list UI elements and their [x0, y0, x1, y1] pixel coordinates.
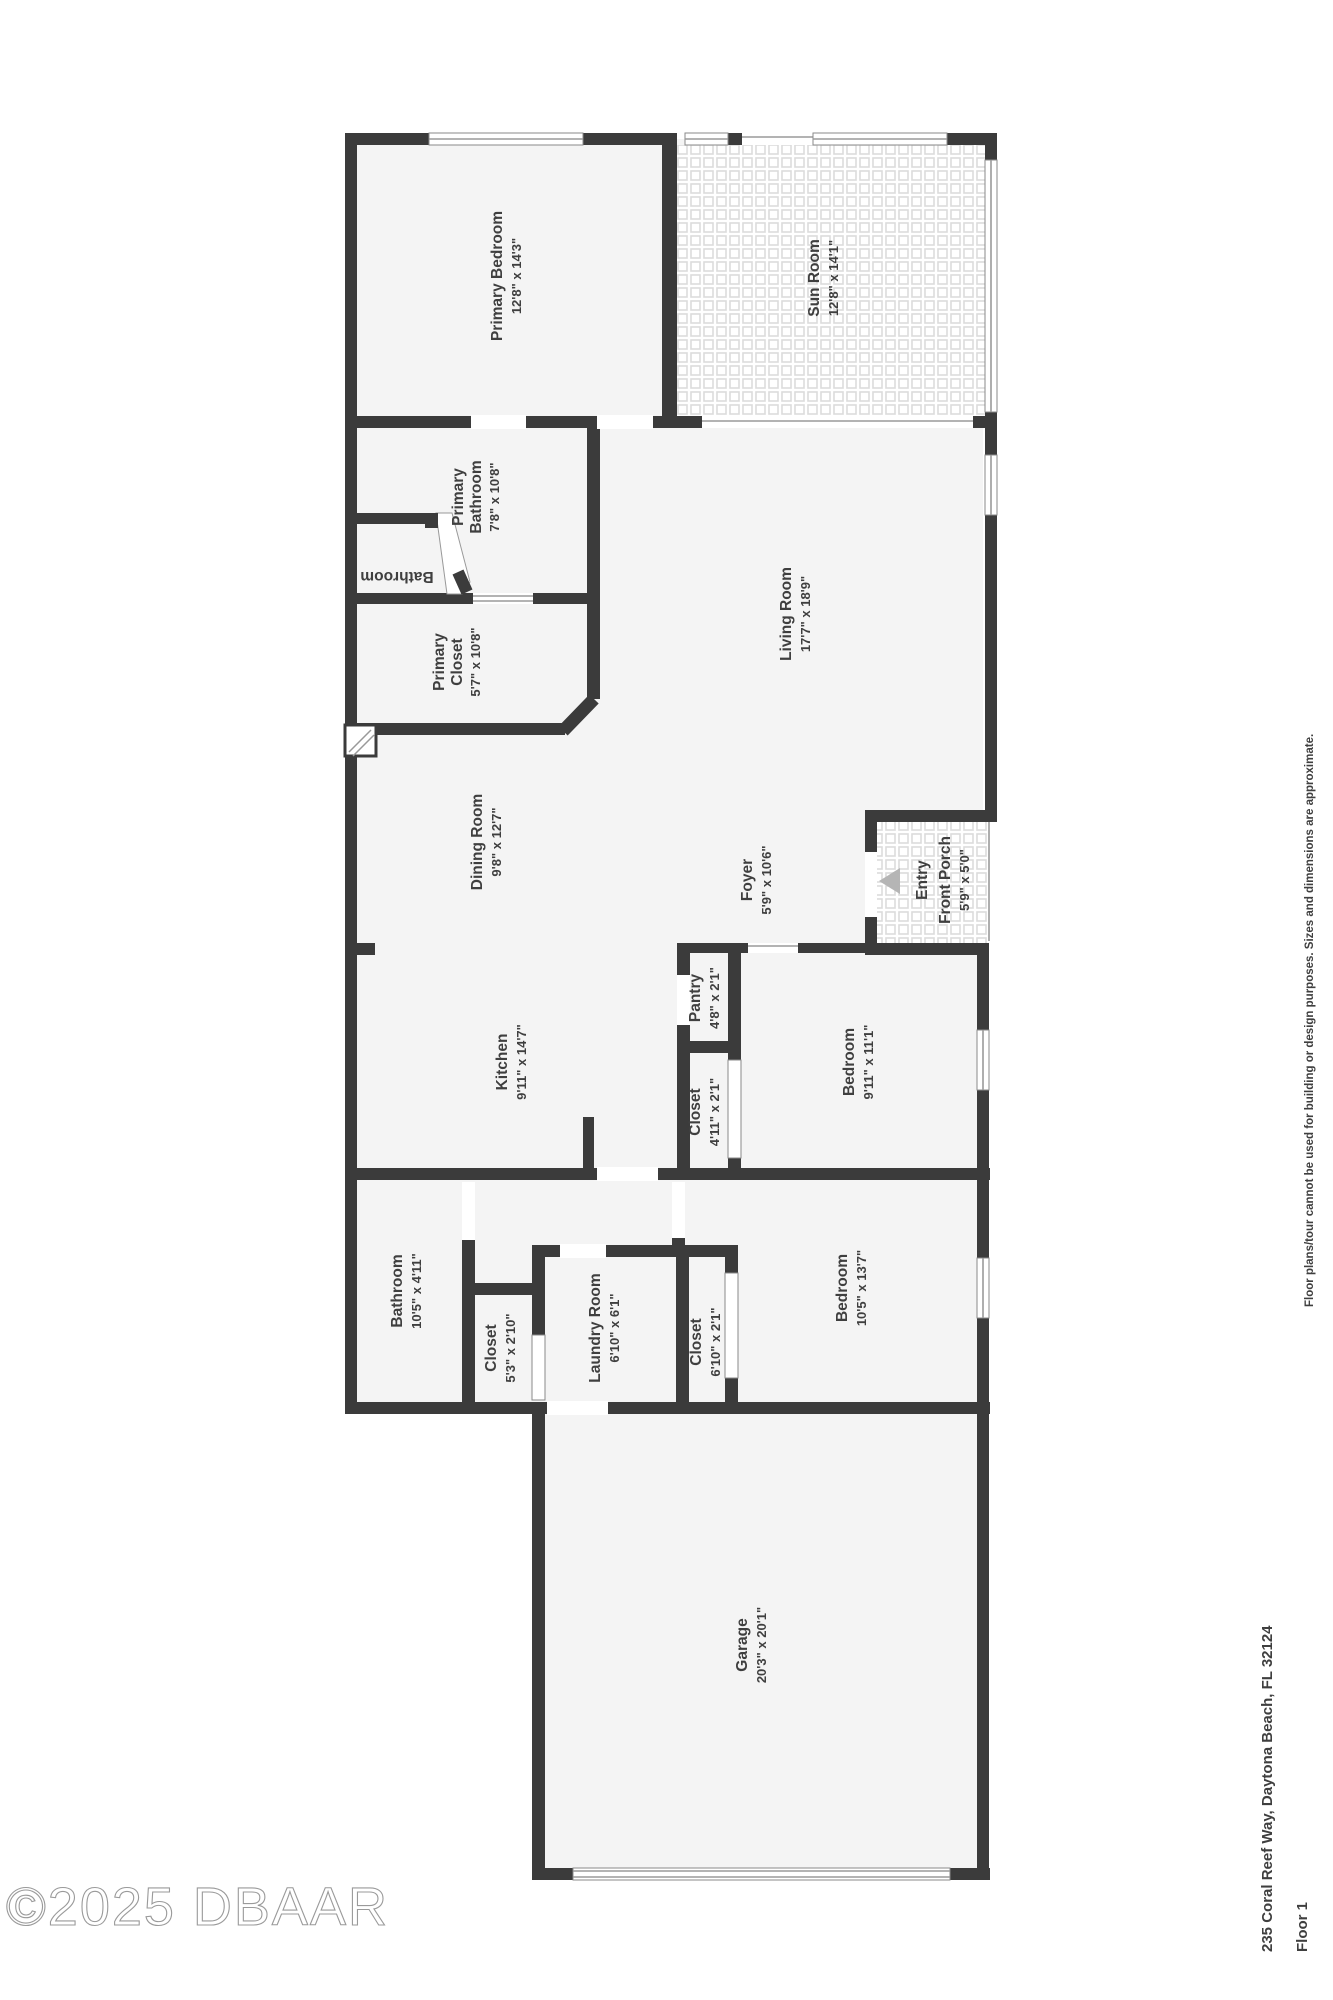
room-dims: 10'5" x 13'7"	[854, 1250, 869, 1326]
front-door	[865, 852, 877, 917]
bathroom-door	[462, 1182, 475, 1240]
floor-plan: Primary Bedroom 12'8" x 14'3" Sun Room 1…	[0, 0, 1333, 2000]
room-label: Bedroom	[841, 1028, 858, 1096]
annotations: Floor plans/tour cannot be used for buil…	[1259, 734, 1316, 1952]
address-text: 235 Coral Reef Way, Daytona Beach, FL 32…	[1259, 1625, 1276, 1952]
watermark: ©2025 DBAAR	[6, 1876, 389, 1938]
room-label: Bathroom	[360, 568, 433, 585]
room-label: Closet	[688, 1318, 705, 1365]
closet-sliding-door	[728, 1060, 741, 1158]
room-label: Laundry Room	[587, 1273, 604, 1382]
room-dims: 4'11" x 2'1"	[707, 1078, 722, 1146]
room-dims: 17'7" x 18'9"	[798, 576, 813, 652]
garage-door	[573, 1868, 950, 1880]
laundry-door	[560, 1244, 606, 1258]
room-label: Primary Bedroom	[489, 211, 506, 341]
room-entry: Entry	[914, 860, 931, 900]
room-dims: 5'9" x 10'6"	[759, 845, 774, 914]
room-wc-bathroom: Bathroom	[360, 568, 433, 585]
disclaimer-text: Floor plans/tour cannot be used for buil…	[1304, 734, 1316, 1307]
primary-bedroom-bath-door	[471, 415, 526, 429]
room-label: Garage	[734, 1618, 751, 1672]
room-dims: 5'9" x 5'0"	[957, 849, 972, 911]
room-label: Primary	[450, 468, 467, 526]
room-dims: 9'11" x 14'7"	[514, 1024, 529, 1100]
room-label: Foyer	[739, 859, 756, 901]
room-label: Primary	[431, 633, 448, 691]
room-dims: 10'5" x 4'11"	[409, 1253, 424, 1329]
room-dims: 12'8" x 14'1"	[826, 240, 841, 316]
room-dims: 5'3" x 2'10"	[503, 1313, 518, 1382]
room-dims: 6'10" x 6'1"	[607, 1293, 622, 1362]
room-label: Pantry	[687, 974, 704, 1023]
room-label: Kitchen	[494, 1034, 511, 1091]
closet-sliding-door	[725, 1273, 738, 1378]
primary-bedroom-door	[597, 415, 653, 429]
closet-sliding-door	[532, 1335, 545, 1400]
room-dims: 7'8" x 10'8"	[487, 462, 502, 531]
kitchen-hall-opening	[597, 1167, 658, 1181]
room-primary-bathroom: Primary Bathroom 7'8" x 10'8"	[450, 460, 502, 533]
floor-plan-page: Primary Bedroom 12'8" x 14'3" Sun Room 1…	[0, 0, 1333, 2000]
room-dims: 4'8" x 2'1"	[707, 967, 722, 1029]
room-label: Front Porch	[937, 836, 954, 924]
room-dims: 20'3" x 20'1"	[754, 1607, 769, 1683]
room-label: Living Room	[778, 567, 795, 661]
room-dims: 6'10" x 2'1"	[708, 1307, 723, 1376]
room-label: Bathroom	[389, 1254, 406, 1327]
room-label: Closet	[483, 1324, 500, 1371]
room-label: Entry	[914, 860, 931, 900]
room-label: Bathroom	[468, 460, 485, 533]
room-label: Closet	[449, 638, 466, 685]
room-label: Dining Room	[469, 794, 486, 890]
room-dims: 9'8" x 12'7"	[489, 807, 504, 876]
room-label: Closet	[687, 1088, 704, 1135]
laundry-garage-door	[547, 1401, 608, 1415]
room-label: Sun Room	[806, 239, 823, 317]
room-dims: 9'11" x 11'1"	[861, 1025, 876, 1100]
floor-label: Floor 1	[1294, 1902, 1311, 1952]
room-label: Bedroom	[834, 1254, 851, 1322]
room-dims: 12'8" x 14'3"	[509, 238, 524, 314]
bedroom2-door	[672, 1182, 685, 1238]
room-dims: 5'7" x 10'8"	[468, 627, 483, 696]
